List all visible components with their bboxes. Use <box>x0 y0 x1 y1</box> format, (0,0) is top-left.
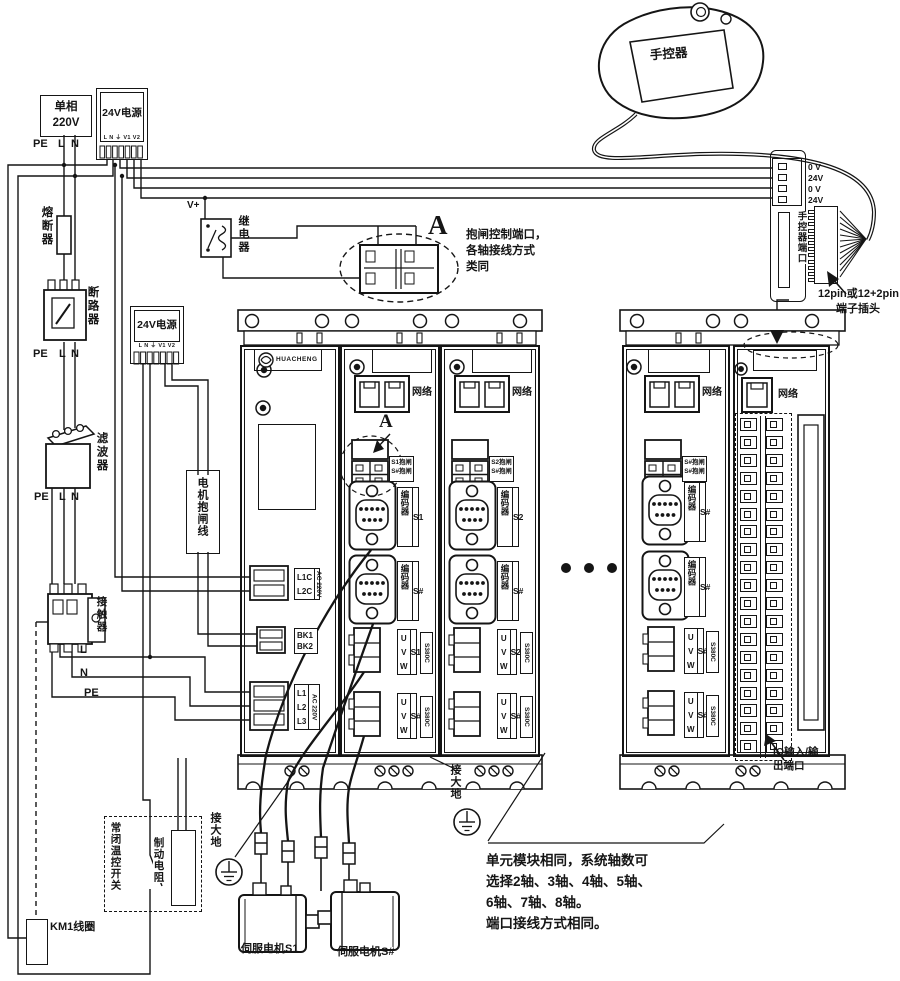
encoder-label-m4a: 编码器S# <box>684 482 706 542</box>
pe-label-1: PE <box>33 139 48 150</box>
psu2-terminal-labels: L N ⏚ V1 V2 <box>133 344 181 350</box>
io-terminal-strip <box>735 413 792 761</box>
top-brackets <box>238 310 845 345</box>
mains-line1: 单相 <box>40 102 92 114</box>
uvw-label-s2: UVW S2 <box>497 629 517 675</box>
display-window <box>258 424 316 510</box>
plug-note1: 12pin或12+2pin <box>818 289 899 300</box>
servo-motor-1 <box>239 883 319 952</box>
pin-0v-1: 0 V <box>808 163 821 172</box>
km1-label: KM1线圈 <box>50 922 95 933</box>
encoder-label-s2: 编码器S2 <box>497 487 519 547</box>
connector-pin <box>778 196 787 203</box>
encoder-label-s#-m2: 编码器S# <box>397 561 419 621</box>
filter-label: 滤波器 <box>95 432 107 473</box>
brake-chip-m3: S2抱闸S#抱闸 <box>489 456 514 482</box>
net-label-m3: 网络 <box>512 388 532 398</box>
earth-symbol-2 <box>454 809 480 835</box>
encoder-label-s1: 编码器S1 <box>397 487 419 547</box>
motor2-label: 伺服电机S# <box>337 947 394 958</box>
l1c-l2c-label: L1CL2C AC 220V <box>294 568 320 600</box>
out-pe-label: PE <box>84 688 99 699</box>
nameplate-m4 <box>648 349 710 373</box>
model-chip: S380C <box>420 632 433 674</box>
model-chip: S380C <box>706 695 719 737</box>
model-chip: S380C <box>520 696 533 738</box>
net-label-m4: 网络 <box>702 388 722 398</box>
detail-a-note1: 抱闸控制端口， <box>466 230 547 242</box>
connector-pin <box>778 174 787 181</box>
out-l-label: L <box>80 645 87 656</box>
brand-label: HUACHENG <box>276 357 318 364</box>
port-slot <box>778 212 790 288</box>
km1-coil-box <box>26 919 48 965</box>
pendant-power-connector <box>772 158 802 206</box>
uvw-label-s1: UVW S1 <box>397 629 417 675</box>
mains-line2: 220V <box>40 118 92 130</box>
encoder-label-m4b: 编码器S# <box>684 557 706 617</box>
filter-symbol <box>46 425 94 488</box>
model-chip: S380C <box>520 632 533 674</box>
n-label-3: N <box>71 492 79 503</box>
brake-resistor-box <box>171 830 196 906</box>
detail-a-letter: A <box>428 212 448 239</box>
pendant-label: 手控器 <box>650 47 688 62</box>
uvw-label-s#-m2: UVW S# <box>397 693 417 739</box>
pin-0v-2: 0 V <box>808 185 821 194</box>
n-label-2: N <box>71 349 79 360</box>
model-chip: S380C <box>706 631 719 673</box>
plug-note2: 端子插头 <box>836 304 880 315</box>
uvw-label-m4a: UVW S# <box>684 628 704 674</box>
io-note2: 出端口 <box>773 761 805 772</box>
psu2-title: 24V电源 <box>132 320 182 331</box>
net-label-m2: 网络 <box>412 388 432 398</box>
uvw-label-s#-m3: UVW S# <box>497 693 517 739</box>
earth-label-1: 接大地 <box>209 812 220 848</box>
module-ellipsis <box>561 563 617 573</box>
breaker-label: 断路器 <box>86 286 98 327</box>
detail-a-note3: 类同 <box>466 262 489 274</box>
wiring-diagram: 单相 220V PE L N 24V电源 L N ⏚ V1 V2 24V电源 L… <box>0 0 900 981</box>
psu1-terminal-labels: L N ⏚ V1 V2 <box>99 136 145 142</box>
module-a-letter: A <box>379 412 393 431</box>
relay-label: 继电器 <box>237 215 248 254</box>
contactor-label: 接触器 <box>96 596 107 634</box>
brake-chip-m4: S#抱闸S#抱闸 <box>682 456 707 482</box>
earth-label-2: 接大地 <box>449 764 460 800</box>
model-chip: S380C <box>420 696 433 738</box>
connector-pin <box>778 185 787 192</box>
encoder-label-s#-m3: 编码器S# <box>497 561 519 621</box>
l-label-3: L <box>59 492 66 503</box>
motor1-label: 伺服电机S1 <box>241 944 298 955</box>
fuse-label: 熔断器 <box>40 206 52 247</box>
net-label-io: 网络 <box>778 390 798 400</box>
brake-port-detail <box>360 245 438 293</box>
fuse-symbol <box>57 216 71 254</box>
relay-symbol <box>201 219 231 257</box>
l-label-1: L <box>58 139 65 150</box>
io-note1: IO输入/输 <box>773 747 819 758</box>
pe-label-2: PE <box>33 349 48 360</box>
pe-label-3: PE <box>34 492 49 503</box>
unit-note: 单元模块相同，系统轴数可 选择2轴、3轴、4轴、5轴、 6轴、7轴、8轴。 端口… <box>486 851 651 935</box>
nameplate-io <box>753 350 817 371</box>
pin-24v-2: 24V <box>808 196 823 205</box>
vplus-label: V+ <box>187 201 200 211</box>
brake-resistor-label: 制动电阻 <box>153 837 164 883</box>
n-label-1: N <box>71 139 79 150</box>
wire-fan <box>840 211 866 277</box>
uvw-label-m4b: UVW S# <box>684 692 704 738</box>
nameplate-m3 <box>472 349 532 373</box>
pendant-port-label: 手控器端口 <box>796 211 806 264</box>
breaker-symbol <box>44 280 86 340</box>
temp-switch-label: 常闭温控开关 <box>110 822 121 891</box>
nameplate-m2 <box>372 349 432 373</box>
detail-a-note2: 各轴接线方式 <box>466 246 535 258</box>
12pin-connector <box>814 206 838 284</box>
bk1-bk2-label: BK1BK2 <box>294 628 318 654</box>
psu1-title: 24V电源 <box>98 108 146 119</box>
pin-24v-1: 24V <box>808 174 823 183</box>
module-power <box>240 345 340 757</box>
pendant-drawing <box>594 3 874 240</box>
brake-line-label: 电机抱闸线 <box>196 477 207 537</box>
l1-l2-l3-label: L1L2L3 AC 220V <box>294 684 320 730</box>
brake-chip-m2: S1抱闸S#抱闸 <box>389 456 414 482</box>
servo-motor-2 <box>318 880 399 950</box>
cable-plugs <box>255 833 355 864</box>
l-label-2: L <box>59 349 66 360</box>
out-n-label: N <box>80 668 88 679</box>
earth-symbol <box>216 859 242 885</box>
connector-pin <box>778 163 787 170</box>
